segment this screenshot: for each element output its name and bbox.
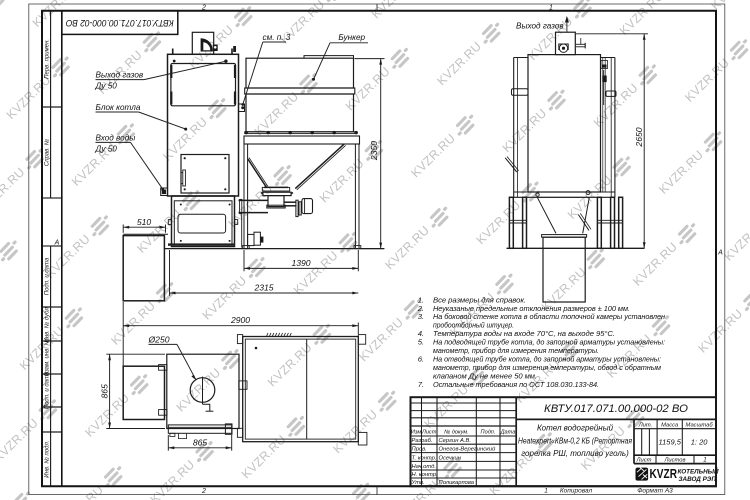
svg-text:Ду 50: Ду 50: [95, 82, 118, 91]
svg-text:6.: 6.: [418, 354, 424, 363]
svg-text:865: 865: [99, 384, 109, 399]
svg-text:1390: 1390: [291, 258, 310, 268]
svg-text:Ду 50: Ду 50: [95, 144, 118, 153]
svg-text:Изм: Изм: [411, 430, 422, 436]
svg-text:1159,5: 1159,5: [659, 438, 682, 447]
svg-text:КВТУ.017.071.00.000-02 ВО: КВТУ.017.071.00.000-02 ВО: [65, 17, 173, 28]
svg-text:1: 1: [544, 487, 548, 494]
svg-text:ЗАВОД РЭП: ЗАВОД РЭП: [679, 476, 717, 483]
svg-text:7.: 7.: [418, 380, 424, 389]
svg-text:Перв. примен.: Перв. примен.: [44, 39, 50, 79]
svg-text:Остальные требования по ОСТ 10: Остальные требования по ОСТ 108.030.133-…: [433, 380, 599, 389]
svg-text:Лит.: Лит.: [638, 422, 653, 428]
svg-text:Дата: Дата: [500, 430, 516, 436]
svg-text:№ докум.: № докум.: [444, 430, 469, 436]
svg-text:Н. контр.: Н. контр.: [412, 472, 438, 478]
svg-text:Разраб.: Разраб.: [412, 438, 433, 444]
svg-text:Масса: Масса: [661, 422, 679, 428]
svg-text:Подп.: Подп.: [481, 430, 496, 436]
svg-text:Копировал: Копировал: [560, 487, 593, 494]
svg-text:Инв. № дубл.: Инв. № дубл.: [43, 306, 50, 343]
svg-text:Сергин А.В.: Сергин А.В.: [439, 438, 471, 444]
svg-text:Ø250: Ø250: [148, 334, 170, 344]
svg-text:3.: 3.: [418, 312, 424, 321]
svg-text:KVZR: KVZR: [650, 466, 678, 481]
svg-text:Поликарпова: Поликарпова: [439, 480, 475, 486]
svg-text:Котел водогрейный: Котел водогрейный: [537, 423, 614, 432]
svg-text:Лист: Лист: [421, 430, 437, 436]
svg-text:2: 2: [201, 5, 206, 12]
svg-text:А: А: [54, 240, 60, 247]
svg-text:Подп. и дата: Подп. и дата: [44, 257, 50, 295]
svg-text:2350: 2350: [369, 141, 379, 161]
svg-text:Выход газов: Выход газов: [96, 71, 144, 80]
svg-text:горелка РШ, топливо уголь): горелка РШ, топливо уголь): [521, 449, 629, 458]
svg-text:Бункер: Бункер: [338, 33, 365, 42]
svg-text:Вход воды: Вход воды: [96, 133, 136, 142]
svg-text:Справ. №: Справ. №: [43, 138, 50, 166]
svg-text:Блок котла: Блок котла: [96, 103, 141, 112]
svg-text:Т. контр.: Т. контр.: [412, 455, 437, 461]
svg-text:КВТУ.017.071.00.000-02 ВО: КВТУ.017.071.00.000-02 ВО: [544, 403, 688, 415]
svg-text:Онегов-Верегинский: Онегов-Верегинский: [439, 446, 497, 453]
svg-text:Масштаб: Масштаб: [686, 422, 714, 428]
svg-text:2650: 2650: [634, 127, 644, 147]
svg-text:Heatexpert«КВм-0,2 КБ (Ретортн: Heatexpert«КВм-0,2 КБ (Ретортная: [518, 436, 633, 445]
svg-text:КОТЕЛЬНЫЙ: КОТЕЛЬНЫЙ: [678, 466, 719, 475]
svg-text:Взам. инв. №: Взам. инв. №: [43, 338, 50, 376]
svg-text:Подп. и дата: Подп. и дата: [44, 371, 50, 409]
svg-text:2900: 2900: [230, 315, 250, 325]
svg-text:А: А: [717, 250, 723, 257]
svg-text:2315: 2315: [253, 283, 273, 293]
svg-text:Нач.отд.: Нач.отд.: [412, 464, 436, 470]
svg-text:2: 2: [201, 488, 206, 495]
svg-text:510: 510: [137, 217, 152, 227]
svg-text:Лист: Лист: [636, 458, 652, 464]
svg-text:Инв. № подл.: Инв. № подл.: [43, 440, 50, 477]
svg-text:1: 1: [549, 5, 553, 12]
svg-text:Осечкин: Осечкин: [439, 455, 462, 461]
svg-text:Утв.: Утв.: [411, 480, 425, 486]
svg-text:Формат А3: Формат А3: [637, 487, 673, 494]
svg-text:5.: 5.: [418, 338, 424, 347]
svg-text:Пров.: Пров.: [412, 447, 427, 453]
svg-text:см. п. 3: см. п. 3: [263, 33, 291, 42]
svg-text:865: 865: [193, 437, 208, 447]
svg-text:1: 20: 1: 20: [691, 438, 709, 447]
svg-text:Выход газов: Выход газов: [516, 22, 564, 31]
svg-text:Листов: Листов: [663, 458, 685, 464]
svg-text:1: 1: [703, 457, 706, 464]
